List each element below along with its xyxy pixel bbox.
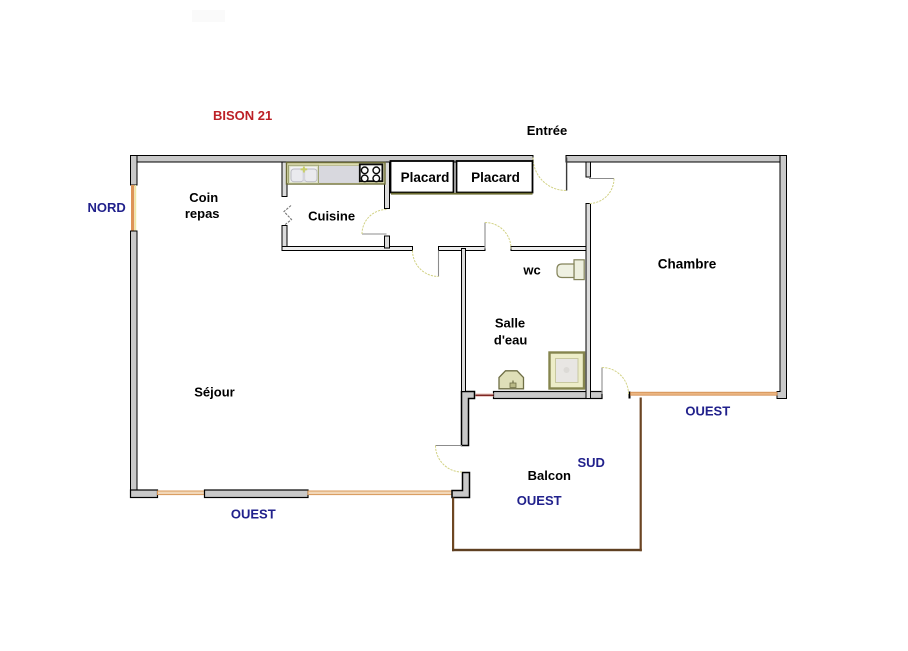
- svg-text:SUD: SUD: [577, 455, 604, 470]
- svg-text:Balcon: Balcon: [528, 468, 571, 483]
- svg-text:Chambre: Chambre: [658, 257, 717, 272]
- svg-text:Cuisine: Cuisine: [308, 209, 355, 224]
- svg-text:Coin: Coin: [189, 190, 218, 205]
- svg-text:OUEST: OUEST: [231, 506, 276, 521]
- svg-text:OUEST: OUEST: [517, 493, 562, 508]
- svg-text:d'eau: d'eau: [494, 332, 527, 347]
- svg-text:Salle: Salle: [495, 316, 525, 331]
- svg-text:OUEST: OUEST: [685, 404, 730, 419]
- svg-text:Séjour: Séjour: [194, 384, 234, 399]
- svg-text:Placard: Placard: [401, 170, 450, 185]
- svg-text:Entrée: Entrée: [527, 123, 567, 138]
- svg-text:BISON 21: BISON 21: [213, 108, 272, 123]
- svg-text:Placard: Placard: [471, 170, 520, 185]
- svg-text:repas: repas: [185, 206, 220, 221]
- svg-text:NORD: NORD: [88, 200, 126, 215]
- svg-text:wc: wc: [522, 263, 540, 278]
